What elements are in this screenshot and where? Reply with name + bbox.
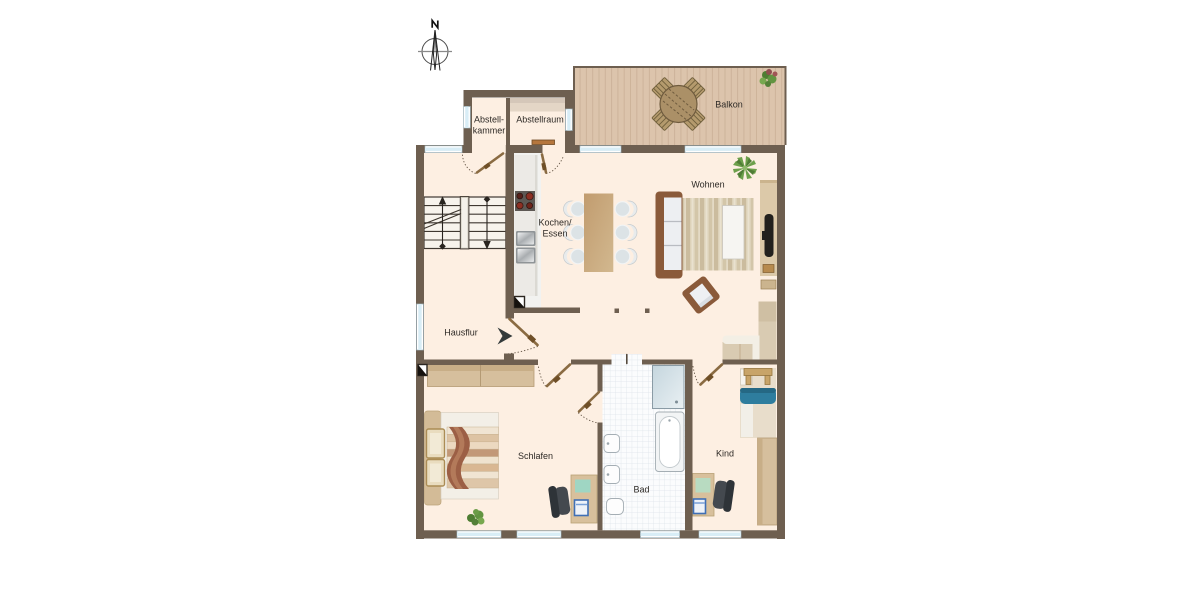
svg-text:Abstell-: Abstell- [474,115,504,125]
svg-text:Kochen/: Kochen/ [538,218,572,228]
svg-text:Kind: Kind [716,449,734,459]
svg-text:Balkon: Balkon [715,100,743,110]
svg-text:kammer: kammer [473,126,506,136]
svg-text:Abstellraum: Abstellraum [516,115,564,125]
svg-text:Hausflur: Hausflur [444,328,478,338]
svg-text:Bad: Bad [633,485,649,495]
svg-text:Essen: Essen [542,229,567,239]
svg-text:Schlafen: Schlafen [518,451,553,461]
svg-text:Wohnen: Wohnen [691,180,724,190]
